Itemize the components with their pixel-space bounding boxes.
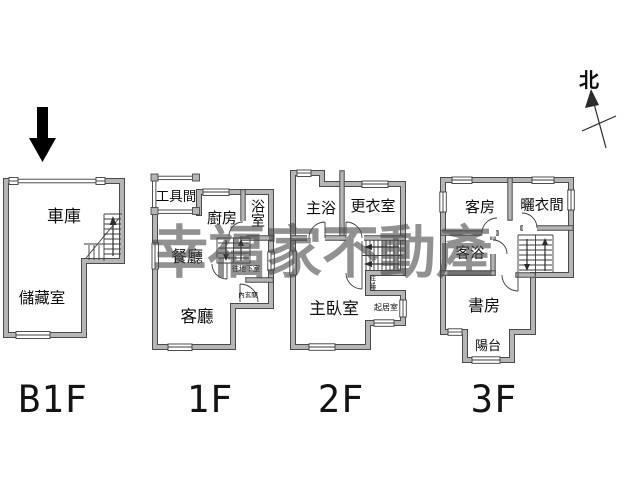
annotation-to-3f: 往3樓 — [369, 274, 376, 292]
f3-doors — [482, 213, 537, 291]
annotation-inner-foyer: 內玄關 — [238, 290, 258, 299]
floor-label-3f: 3F — [471, 378, 518, 421]
room-label-balcony: 陽台 — [475, 339, 501, 354]
room-label-dining: 餐廳 — [171, 247, 203, 266]
f3-stairs — [518, 235, 553, 275]
down-arrow-icon — [29, 107, 56, 162]
room-label-drying-room: 曬衣間 — [520, 197, 564, 214]
room-label-garage: 車庫 — [47, 207, 81, 227]
room-label-bath: 浴室 — [249, 199, 265, 227]
annotation-to-basement: 往地下室 — [232, 264, 260, 273]
room-label-master-bath: 主浴 — [306, 199, 336, 217]
room-label-tool-room: 工具間 — [156, 189, 197, 205]
room-label-study: 書房 — [468, 296, 500, 315]
f2-doors — [307, 222, 364, 289]
floor-plan-1f: 工具間 廚房 浴室 餐廳 客廳 往地下室 內玄關 — [151, 174, 274, 351]
room-label-sitting-room: 起居室 — [374, 302, 398, 312]
floor-label-b1f: B1F — [18, 378, 88, 421]
room-label-guest-bath: 客浴 — [456, 245, 485, 262]
floor-plan-3f: 客房 曬衣間 客浴 書房 陽台 — [440, 177, 575, 363]
floor-label-1f: 1F — [187, 378, 234, 421]
north-arrow-icon: 北 — [579, 68, 616, 148]
b1f-stairs — [84, 214, 122, 261]
floor-plan-b1f: 車庫 儲藏室 — [6, 176, 122, 339]
room-label-living: 客廳 — [181, 307, 214, 326]
room-label-dressing-room: 更衣室 — [350, 197, 395, 215]
floor-label-2f: 2F — [318, 378, 365, 421]
room-label-guest-room: 客房 — [465, 198, 495, 216]
b1f-garage-door — [18, 176, 96, 186]
f2-stairs — [362, 240, 402, 273]
room-label-kitchen: 廚房 — [207, 209, 237, 227]
floor-plan-2f: 主浴 更衣室 主臥室 起居室 往3樓 — [290, 170, 407, 350]
room-label-storage: 儲藏室 — [19, 289, 66, 307]
floorplan-page: 北 車庫 — [0, 0, 640, 480]
b1f-walls — [6, 181, 122, 335]
north-label: 北 — [579, 68, 599, 92]
room-label-master-bedroom: 主臥室 — [309, 299, 359, 318]
